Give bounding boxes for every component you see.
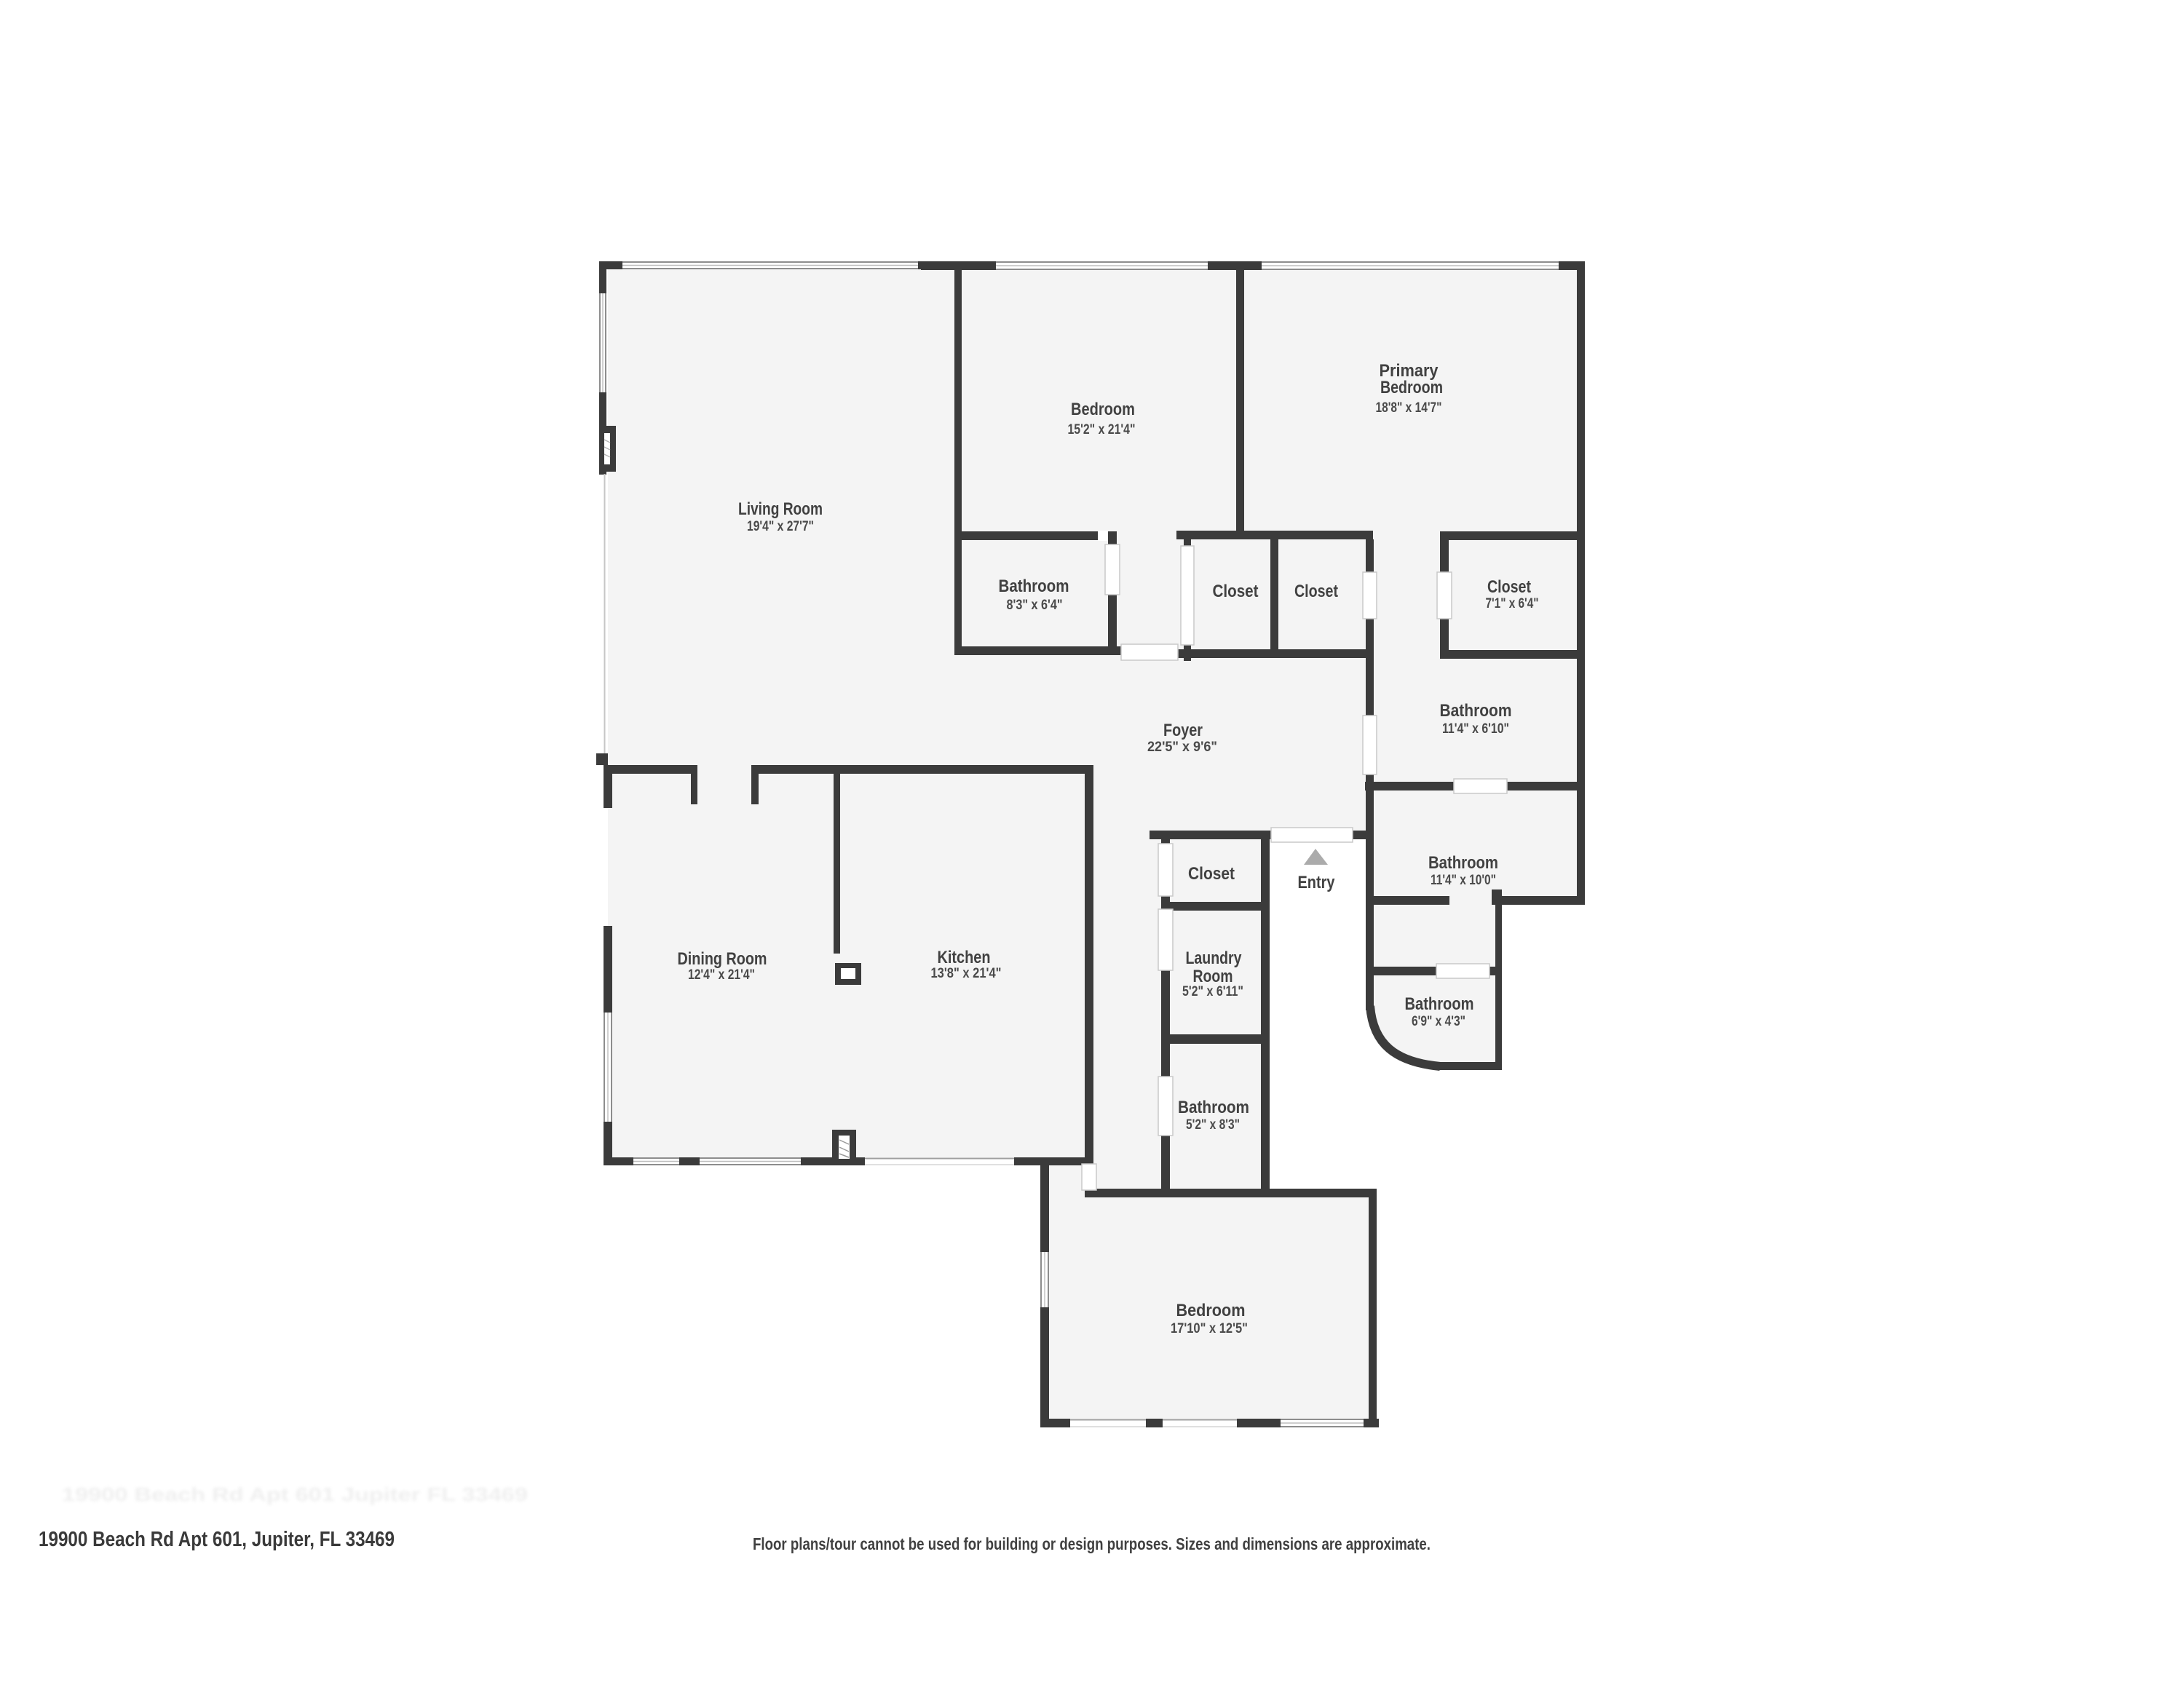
svg-text:7'1" x 6'4": 7'1" x 6'4" [1486, 596, 1539, 611]
svg-text:Foyer: Foyer [1163, 721, 1203, 740]
svg-text:Kitchen: Kitchen [938, 948, 991, 967]
svg-text:Bathroom: Bathroom [1405, 994, 1474, 1014]
svg-text:19900 Beach Rd Apt 601 Jupiter: 19900 Beach Rd Apt 601 Jupiter FL 33469 [62, 1483, 528, 1505]
svg-text:5'2" x 6'11": 5'2" x 6'11" [1182, 984, 1243, 999]
svg-text:22'5" x 9'6": 22'5" x 9'6" [1147, 740, 1217, 755]
svg-text:Bathroom: Bathroom [1428, 853, 1498, 873]
svg-text:Floor plans/tour cannot be use: Floor plans/tour cannot be used for buil… [753, 1534, 1431, 1553]
svg-text:Bedroom: Bedroom [1176, 1301, 1246, 1320]
svg-text:6'9" x 4'3": 6'9" x 4'3" [1412, 1014, 1465, 1029]
svg-text:Closet: Closet [1213, 582, 1259, 601]
svg-text:Room: Room [1193, 967, 1233, 986]
svg-text:12'4" x 21'4": 12'4" x 21'4" [688, 967, 755, 983]
svg-text:Living Room: Living Room [738, 499, 823, 519]
svg-text:Dining Room: Dining Room [678, 949, 767, 969]
svg-text:8'3" x 6'4": 8'3" x 6'4" [1007, 598, 1063, 613]
svg-text:Bathroom: Bathroom [999, 576, 1069, 596]
svg-text:Closet: Closet [1188, 864, 1235, 884]
svg-text:Bedroom: Bedroom [1380, 378, 1443, 397]
svg-text:Bathroom: Bathroom [1440, 701, 1512, 721]
svg-text:19'4" x 27'7": 19'4" x 27'7" [747, 519, 814, 534]
svg-text:18'8" x 14'7": 18'8" x 14'7" [1376, 400, 1442, 416]
svg-text:Closet: Closet [1487, 577, 1531, 597]
svg-text:5'2" x 8'3": 5'2" x 8'3" [1186, 1117, 1240, 1133]
svg-text:Closet: Closet [1294, 582, 1338, 601]
svg-text:17'10" x 12'5": 17'10" x 12'5" [1171, 1321, 1248, 1336]
svg-text:Laundry: Laundry [1186, 948, 1243, 968]
svg-text:11'4" x 6'10": 11'4" x 6'10" [1442, 721, 1509, 737]
svg-text:Bathroom: Bathroom [1178, 1098, 1249, 1117]
svg-text:11'4" x 10'0": 11'4" x 10'0" [1431, 873, 1496, 888]
svg-text:13'8" x 21'4": 13'8" x 21'4" [931, 966, 1002, 981]
svg-text:Bedroom: Bedroom [1071, 400, 1135, 419]
svg-text:15'2" x 21'4": 15'2" x 21'4" [1068, 422, 1136, 437]
svg-text:19900 Beach Rd Apt 601, Jupite: 19900 Beach Rd Apt 601, Jupiter, FL 3346… [39, 1528, 395, 1551]
svg-text:Entry: Entry [1298, 873, 1336, 892]
